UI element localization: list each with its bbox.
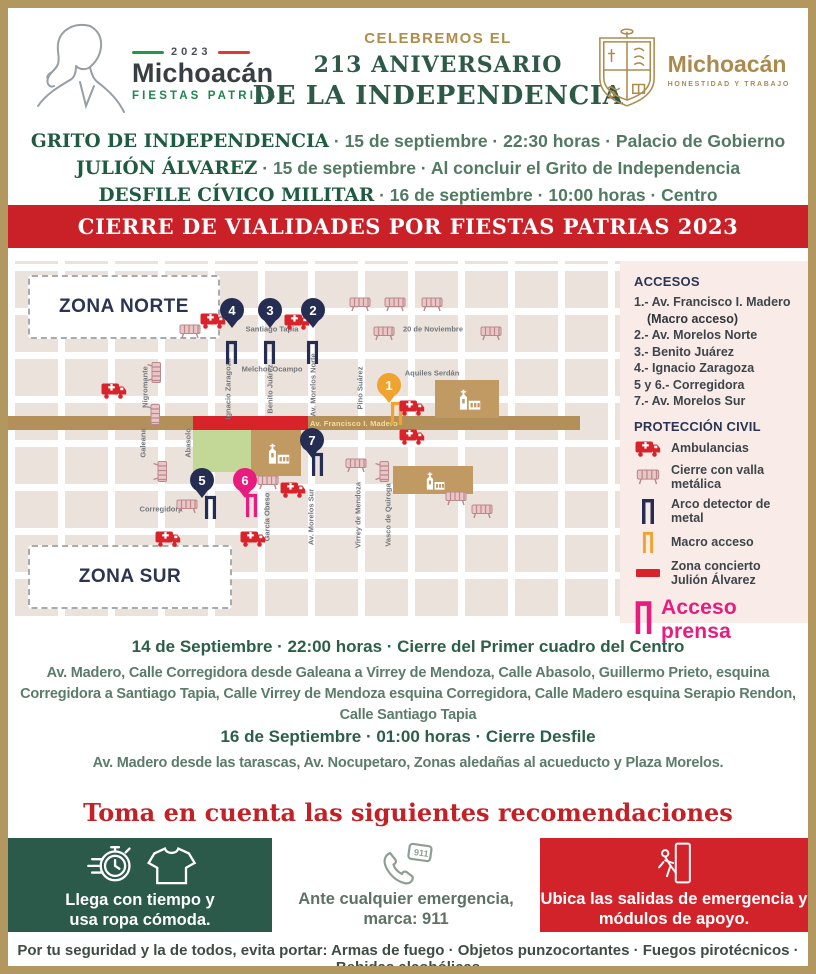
event-julion: JULIÓN ÁLVAREZ · 15 de septiembre · Al c… — [8, 155, 808, 182]
street-label: Galeana — [139, 428, 148, 457]
cathedral-block — [251, 430, 301, 476]
event-grito: GRITO DE INDEPENDENCIA · 15 de septiembr… — [8, 128, 808, 155]
fence-barrier-icon — [634, 469, 662, 485]
concert-zone-icon — [634, 569, 662, 577]
metal-detector-arch-icon — [634, 498, 662, 524]
street-label: Abasolo — [184, 428, 193, 458]
fence-barrier-icon — [480, 326, 502, 341]
box-text-line: Llega con tiempo y — [65, 890, 214, 910]
fence-barrier-icon — [345, 458, 367, 473]
title-line-2: 213 ANIVERSARIO — [248, 52, 628, 78]
green-dash-icon — [132, 51, 164, 54]
event-details: · 16 de septiembre · 10:00 horas · Centr… — [379, 185, 717, 205]
concert-zone-strip — [193, 416, 308, 430]
recommendation-box-exits: Ubica las salidas de emergencia y módulo… — [540, 838, 808, 932]
event-name: DESFILE CÍVICO MILITAR — [98, 185, 374, 206]
fence-barrier-icon — [373, 326, 395, 341]
call-badge-911: 911 — [413, 847, 429, 859]
ambulance-icon — [280, 481, 306, 498]
fence-barrier-icon — [153, 461, 168, 483]
street-label: Aquiles Serdán — [405, 369, 460, 378]
press-access-arch-icon — [634, 600, 653, 639]
fence-barrier-icon — [147, 362, 162, 384]
fence-barrier-icon — [471, 504, 493, 519]
plaza-block — [193, 430, 251, 472]
acceso-item: 5 y 6.- Corregidora — [634, 377, 802, 394]
fence-barrier-icon — [375, 461, 390, 483]
poster: 2023 Michoacán FIESTAS PATRIAS CELEBREMO… — [0, 0, 816, 974]
zone-south-box: ZONA SUR — [28, 545, 232, 609]
accesos-title: ACCESOS — [634, 274, 802, 289]
legend-row-ambulancias: Ambulancias — [634, 440, 802, 457]
fence-barrier-icon — [421, 297, 443, 312]
emergency-exit-icon — [654, 841, 694, 885]
street-label: Benito Juárez — [266, 364, 275, 413]
event-list: GRITO DE INDEPENDENCIA · 15 de septiembr… — [8, 128, 808, 209]
coat-of-arms-icon — [596, 28, 658, 110]
metal-detector-arch-icon — [263, 340, 276, 364]
church-block-south — [393, 466, 473, 494]
ambulance-icon — [155, 530, 181, 547]
proteccion-civil-title: PROTECCIÓN CIVIL — [634, 419, 802, 434]
ambulance-icon — [399, 428, 425, 445]
access-pin-7: 7 — [300, 428, 324, 452]
title-line-1: CELEBREMOS EL — [248, 30, 628, 47]
map-section: ZONA NORTE ZONA SUR Av. Francisco I. Mad… — [8, 256, 808, 628]
church-icon — [452, 388, 482, 410]
fence-barrier-icon — [257, 475, 279, 490]
event-name: GRITO DE INDEPENDENCIA — [31, 131, 329, 152]
street-map: ZONA NORTE ZONA SUR Av. Francisco I. Mad… — [8, 261, 620, 623]
access-pin-1: 1 — [377, 373, 401, 397]
church-icon — [261, 442, 291, 464]
recommendation-boxes: Llega con tiempo y usa ropa cómoda. 911 … — [8, 838, 808, 932]
metal-detector-arch-icon — [306, 340, 319, 364]
event-details: · 15 de septiembre · 22:30 horas · Palac… — [334, 131, 785, 151]
closure-title: 14 de Septiembre · 22:00 horas · Cierre … — [8, 637, 808, 657]
event-details: · 15 de septiembre · Al concluir el Grit… — [262, 158, 740, 178]
acceso-item: 2.- Av. Morelos Norte — [634, 327, 802, 344]
ambulance-icon — [399, 399, 425, 416]
phone-911-icon — [376, 841, 436, 885]
macro-access-arch-icon — [634, 531, 662, 553]
legend-label: Ambulancias — [671, 441, 789, 455]
closure-section-14sep: 14 de Septiembre · 22:00 horas · Cierre … — [8, 637, 808, 726]
closure-banner: CIERRE DE VIALIDADES POR FIESTAS PATRIAS… — [8, 205, 808, 248]
gov-motto: HONESTIDAD Y TRABAJO — [668, 81, 790, 88]
acceso-item: (Macro acceso) — [634, 311, 802, 328]
church-block-north — [435, 380, 499, 418]
red-dash-icon — [218, 51, 250, 54]
acceso-item: 7.- Av. Morelos Sur — [634, 393, 802, 410]
security-footer: Por tu seguridad y la de todos, evita po… — [8, 942, 808, 974]
access-pin-2: 2 — [301, 298, 325, 322]
access-pin-4: 4 — [220, 298, 244, 322]
event-name: JULIÓN ÁLVAREZ — [76, 158, 257, 179]
legend-label: Macro acceso — [671, 535, 789, 549]
box-text-line: Ubica las salidas de emergencia y — [541, 889, 808, 909]
street-label: Virrey de Mendoza — [354, 482, 363, 548]
main-title: CELEBREMOS EL 213 ANIVERSARIO DE LA INDE… — [248, 30, 628, 111]
legend-row-macro: Macro acceso — [634, 531, 802, 553]
closure-body: Av. Madero desde las tarascas, Av. Nocup… — [14, 753, 802, 774]
madero-avenue-label: Av. Francisco I. Madero — [310, 419, 398, 428]
box-text-line: usa ropa cómoda. — [69, 910, 210, 930]
acceso-item: 1.- Av. Francisco I. Madero — [634, 294, 802, 311]
recommendation-box-emergency: 911 Ante cualquier emergencia, marca: 91… — [272, 838, 540, 932]
church-icon — [420, 471, 446, 490]
access-pin-6: 6 — [233, 468, 257, 492]
box-text-line: Ante cualquier emergencia, — [298, 889, 514, 909]
ambulance-icon — [240, 530, 266, 547]
fence-barrier-icon — [445, 491, 467, 506]
fiestas-patrias-logo: 2023 Michoacán FIESTAS PATRIAS — [34, 20, 278, 130]
access-pin-5: 5 — [190, 468, 214, 492]
street-label: Vasco de Quiroga — [384, 483, 393, 546]
michoacan-gov-logo: Michoacán HONESTIDAD Y TRABAJO — [596, 28, 790, 110]
box-text-line: módulos de apoyo. — [599, 909, 749, 929]
legend-row-valla: Cierre con valla metálica — [634, 463, 802, 491]
fence-barrier-icon — [384, 297, 406, 312]
header: 2023 Michoacán FIESTAS PATRIAS CELEBREMO… — [8, 16, 808, 128]
legend-row-arco: Arco detector de metal — [634, 497, 802, 525]
map-legend: ACCESOS 1.- Av. Francisco I. Madero (Mac… — [620, 261, 808, 623]
ambulance-icon — [101, 382, 127, 399]
closure-body: Av. Madero, Calle Corregidora desde Gale… — [14, 663, 802, 726]
access-pin-3: 3 — [258, 298, 282, 322]
woman-line-art-icon — [34, 20, 130, 130]
street-label: Pino Suárez — [356, 367, 365, 410]
legend-label: Zona concierto Julión Álvarez — [671, 559, 789, 587]
street-label: Ignacio Zaragoza — [224, 358, 233, 419]
recommendation-box-time: Llega con tiempo y usa ropa cómoda. — [8, 838, 272, 932]
logo-year: 2023 — [171, 46, 211, 58]
gov-brand: Michoacán — [668, 51, 790, 78]
street-label: Av. Morelos Sur — [307, 489, 316, 545]
box-text-line: marca: 911 — [363, 909, 448, 929]
fence-barrier-icon — [349, 297, 371, 312]
fence-barrier-icon — [146, 404, 161, 426]
fence-barrier-icon — [179, 324, 201, 339]
closure-title: 16 de Septiembre · 01:00 horas · Cierre … — [8, 727, 808, 747]
ambulance-icon — [634, 440, 662, 457]
legend-row-concierto: Zona concierto Julión Álvarez — [634, 559, 802, 587]
title-line-3: DE LA INDEPENDENCIA — [248, 81, 628, 111]
acceso-item: 3.- Benito Juárez — [634, 344, 802, 361]
street-label: 20 de Noviembre — [403, 325, 463, 334]
recommendations-title: Toma en cuenta las siguientes recomendac… — [8, 798, 808, 827]
acceso-item: 4.- Ignacio Zaragoza — [634, 360, 802, 377]
legend-label: Arco detector de metal — [671, 497, 789, 525]
stopwatch-shirt-icon — [81, 840, 199, 886]
legend-label: Cierre con valla metálica — [671, 463, 789, 491]
metal-detector-arch-icon — [225, 340, 238, 364]
closure-section-16sep: 16 de Septiembre · 01:00 horas · Cierre … — [8, 727, 808, 774]
